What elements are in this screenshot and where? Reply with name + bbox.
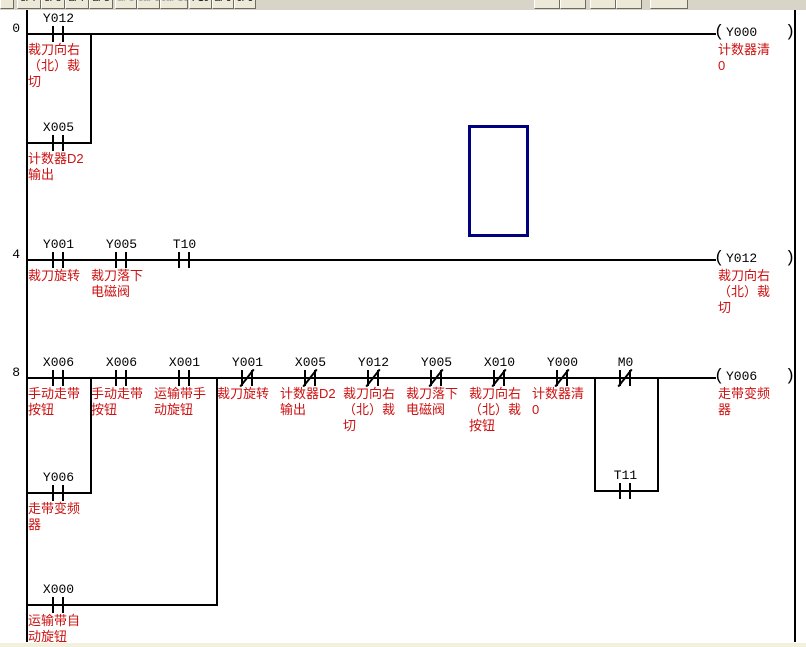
device-comment: 切 — [343, 418, 356, 434]
contact-bar — [178, 370, 180, 386]
coil-paren-left: ( — [714, 367, 724, 386]
device-comment: 0 — [718, 58, 725, 74]
contact-bar — [62, 597, 64, 613]
device-comment: 按钮 — [91, 402, 117, 418]
toolbar-button-cF9[interactable]: cF9 — [234, 0, 256, 9]
device-comment: 切 — [718, 300, 731, 316]
device-label: Y005 — [405, 355, 468, 370]
device-comment: 动旋钮 — [154, 402, 193, 418]
ladder-line — [657, 377, 659, 492]
ladder-line — [26, 10, 28, 647]
ladder-line — [794, 10, 796, 647]
device-label: T10 — [153, 237, 216, 252]
device-comment: 运输带手 — [154, 386, 206, 402]
device-comment: 输出 — [280, 402, 306, 418]
contact-bar — [125, 252, 127, 268]
bottom-strip — [0, 642, 806, 647]
contact-bar — [52, 597, 54, 613]
contact-bar — [62, 485, 64, 501]
device-comment: 运输带自 — [28, 613, 80, 629]
device-label: M0 — [594, 355, 657, 370]
device-comment: （北）裁 — [28, 58, 80, 74]
device-comment: 计数器D2 — [280, 386, 336, 402]
device-comment: 裁刀落下 — [406, 386, 458, 402]
device-comment: 裁刀旋转 — [28, 268, 80, 284]
device-comment: 计数器D2 — [28, 151, 84, 167]
toolbar-button-blank-11[interactable] — [534, 0, 560, 9]
device-comment: 计数器清 — [532, 386, 584, 402]
contact-bar — [52, 26, 54, 42]
contact-bar — [115, 252, 117, 268]
coil-paren-right: ) — [785, 249, 795, 268]
step-number: 4 — [0, 247, 20, 262]
device-comment: 计数器清 — [718, 42, 770, 58]
device-label: X001 — [153, 355, 216, 370]
coil-paren-right: ) — [785, 23, 795, 42]
step-number: 0 — [0, 21, 20, 36]
device-label: Y001 — [216, 355, 279, 370]
contact-bar — [52, 252, 54, 268]
toolbar-button-aF7[interactable]: aF7 — [65, 0, 89, 9]
device-label: Y006 — [726, 369, 786, 384]
coil-paren-right: ) — [785, 367, 795, 386]
toolbar-button-aF9[interactable]: aF9 — [212, 0, 234, 9]
device-comment: 按钮 — [469, 418, 495, 434]
device-comment: 裁刀旋转 — [217, 386, 269, 402]
device-comment: 输出 — [28, 167, 54, 183]
device-label: T11 — [594, 468, 657, 483]
ladder-canvas[interactable] — [0, 10, 806, 647]
toolbar-button-blank-13[interactable] — [590, 0, 616, 9]
coil-paren-left: ( — [714, 23, 724, 42]
device-comment: 切 — [28, 74, 41, 90]
device-comment: 裁刀向右 — [718, 268, 770, 284]
device-comment: 手动走带 — [28, 386, 80, 402]
device-comment: 按钮 — [28, 402, 54, 418]
toolbar-button-caF5[interactable]: caF5 — [137, 0, 160, 9]
device-label: Y005 — [90, 237, 153, 252]
contact-bar — [62, 370, 64, 386]
contact-bar — [115, 370, 117, 386]
contact-bar — [52, 135, 54, 151]
step-number: 8 — [0, 365, 20, 380]
device-label: Y012 — [342, 355, 405, 370]
toolbar-button-aF8[interactable]: aF8 — [89, 0, 113, 9]
ladder-line — [26, 33, 716, 35]
toolbar-button-F10[interactable]: F10 — [189, 0, 212, 9]
device-label: X005 — [27, 120, 90, 135]
device-comment: 走带变频 — [28, 501, 80, 517]
device-label: X006 — [90, 355, 153, 370]
ladder-line — [90, 33, 92, 144]
edit-cursor[interactable] — [468, 125, 529, 237]
device-label: Y000 — [726, 25, 786, 40]
contact-bar — [619, 483, 621, 499]
device-comment: 电磁阀 — [406, 402, 445, 418]
device-label: Y006 — [27, 470, 90, 485]
ladder-line — [90, 377, 92, 494]
contact-bar — [62, 135, 64, 151]
ladder-editor-window: sF7sF8aF7aF8aF5caF5caF10F10aF9cF9 0Y012裁… — [0, 0, 806, 647]
device-comment: 手动走带 — [91, 386, 143, 402]
device-comment: 走带变频 — [718, 386, 770, 402]
ladder-line — [216, 377, 218, 606]
device-label: X006 — [27, 355, 90, 370]
device-comment: 裁刀落下 — [91, 268, 143, 284]
contact-bar — [629, 483, 631, 499]
coil-paren-left: ( — [714, 249, 724, 268]
device-label: Y012 — [27, 11, 90, 26]
contact-bar — [178, 252, 180, 268]
device-label: Y012 — [726, 251, 786, 266]
device-comment: （北）裁 — [469, 402, 521, 418]
device-comment: （北）裁 — [343, 402, 395, 418]
device-comment: 裁刀向右 — [28, 42, 80, 58]
contact-bar — [52, 370, 54, 386]
device-comment: （北）裁 — [718, 284, 770, 300]
device-label: X010 — [468, 355, 531, 370]
device-comment: 器 — [718, 402, 731, 418]
toolbar-button-caF10[interactable]: caF10 — [160, 0, 188, 9]
toolbar-button-aF5[interactable]: aF5 — [115, 0, 137, 9]
contact-bar — [188, 252, 190, 268]
device-comment: 0 — [532, 402, 539, 418]
contact-bar — [62, 26, 64, 42]
toolbar-button-blank-0[interactable] — [0, 0, 14, 9]
toolbar-button-sF8[interactable]: sF8 — [41, 0, 65, 9]
device-label: X005 — [279, 355, 342, 370]
toolbar-button-sF7[interactable]: sF7 — [17, 0, 41, 9]
device-label: X000 — [27, 582, 90, 597]
device-comment: 裁刀向右 — [469, 386, 521, 402]
contact-bar — [125, 370, 127, 386]
device-comment: 电磁阀 — [91, 284, 130, 300]
device-comment: 器 — [28, 517, 41, 533]
contact-bar — [62, 252, 64, 268]
device-comment: 裁刀向右 — [343, 386, 395, 402]
toolbar-button-blank-15[interactable] — [650, 0, 688, 9]
contact-bar — [52, 485, 54, 501]
contact-bar — [188, 370, 190, 386]
toolbar-button-blank-12[interactable] — [560, 0, 586, 9]
device-label: Y000 — [531, 355, 594, 370]
device-label: Y001 — [27, 237, 90, 252]
toolbar-button-blank-14[interactable] — [616, 0, 642, 9]
